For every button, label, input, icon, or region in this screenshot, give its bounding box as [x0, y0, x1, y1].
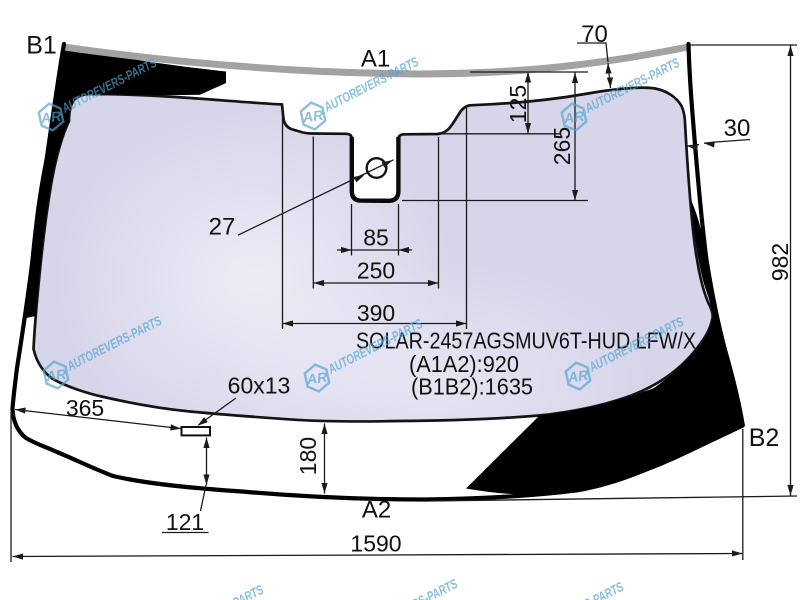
- svg-text:121: 121: [166, 509, 204, 535]
- svg-text:265: 265: [549, 127, 575, 165]
- svg-text:60x13: 60x13: [228, 373, 291, 399]
- svg-text:250: 250: [357, 258, 395, 284]
- svg-text:30: 30: [724, 115, 751, 142]
- svg-text:125: 125: [505, 85, 531, 123]
- svg-text:B1: B1: [26, 32, 57, 60]
- svg-text:365: 365: [66, 395, 104, 421]
- svg-text:(B1B2):1635: (B1B2):1635: [411, 374, 533, 400]
- svg-text:390: 390: [357, 300, 395, 326]
- svg-text:180: 180: [295, 437, 321, 475]
- svg-text:1590: 1590: [350, 531, 401, 557]
- svg-text:B2: B2: [749, 424, 780, 452]
- svg-text:A2: A2: [362, 497, 391, 524]
- svg-text:982: 982: [767, 243, 793, 281]
- svg-text:85: 85: [363, 225, 389, 251]
- svg-text:70: 70: [581, 21, 608, 48]
- svg-text:27: 27: [209, 214, 236, 241]
